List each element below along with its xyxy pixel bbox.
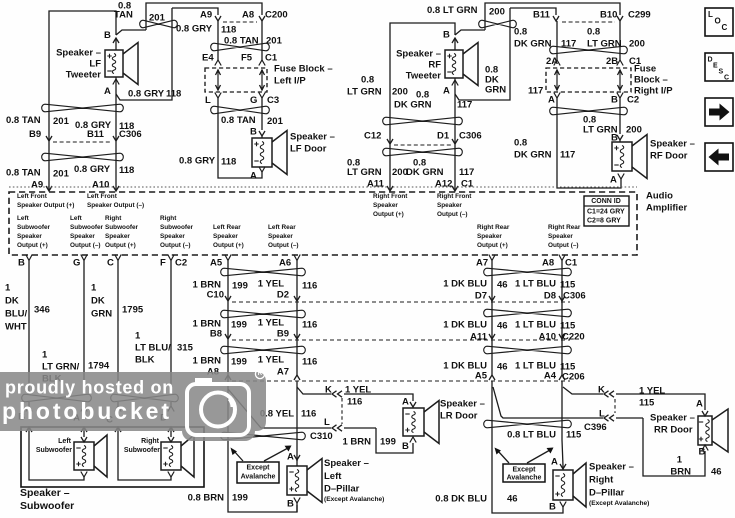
svg-text:0.8 GRY: 0.8 GRY (176, 23, 213, 34)
svg-text:C10: C10 (207, 289, 224, 300)
svg-text:117: 117 (561, 38, 576, 49)
svg-text:Speaker: Speaker (70, 233, 95, 240)
svg-text:Output (–): Output (–) (437, 211, 468, 218)
svg-text:Block –: Block – (634, 74, 668, 85)
svg-text:R: R (258, 371, 263, 377)
svg-text:C: C (724, 75, 729, 82)
svg-text:A: A (696, 398, 703, 409)
svg-text:B: B (104, 30, 111, 41)
svg-text:Speaker: Speaker (437, 202, 462, 209)
svg-text:BLU/: BLU/ (5, 308, 28, 319)
svg-text:0.8 LT GRN: 0.8 LT GRN (427, 5, 478, 16)
svg-text:C306: C306 (459, 130, 482, 141)
svg-text:Speaker: Speaker (373, 202, 398, 209)
svg-text:A: A (443, 85, 450, 96)
svg-text:117: 117 (528, 85, 543, 96)
svg-text:Right I/P: Right I/P (634, 85, 673, 96)
svg-text:Subwoofer: Subwoofer (124, 447, 160, 454)
svg-text:201: 201 (266, 35, 283, 46)
svg-text:B9: B9 (29, 129, 41, 140)
svg-text:B: B (287, 498, 294, 509)
svg-text:A: A (548, 94, 555, 105)
svg-text:LT GRN: LT GRN (347, 86, 382, 97)
svg-text:Speaker: Speaker (160, 233, 185, 240)
svg-text:A: A (610, 174, 617, 185)
svg-text:Avalanche: Avalanche (507, 475, 542, 482)
svg-text:LR Door: LR Door (440, 410, 478, 421)
svg-text:200: 200 (626, 124, 642, 135)
svg-text:A5: A5 (475, 370, 488, 381)
svg-text:115: 115 (639, 397, 655, 408)
svg-text:199: 199 (380, 436, 396, 447)
svg-text:B9: B9 (277, 328, 289, 339)
svg-text:B: B (250, 126, 257, 137)
svg-text:A: A (551, 456, 558, 467)
svg-text:Speaker: Speaker (268, 233, 293, 240)
svg-text:LT GRN: LT GRN (587, 38, 622, 49)
svg-text:Avalanche: Avalanche (241, 474, 276, 481)
svg-text:LT GRN/: LT GRN/ (42, 361, 80, 372)
svg-text:0.8 LT BLU: 0.8 LT BLU (507, 429, 556, 440)
svg-text:Right: Right (160, 215, 177, 222)
svg-text:A4: A4 (544, 370, 557, 381)
svg-text:201: 201 (267, 116, 284, 127)
svg-text:A10: A10 (539, 331, 556, 342)
svg-text:Speaker –: Speaker – (56, 47, 101, 58)
svg-text:Output (+): Output (+) (105, 242, 136, 249)
svg-text:A8: A8 (542, 257, 554, 268)
svg-text:0.8 GRY: 0.8 GRY (74, 164, 111, 175)
svg-text:1 DK BLU: 1 DK BLU (443, 319, 487, 330)
svg-text:C3: C3 (267, 95, 279, 106)
svg-text:117: 117 (459, 167, 474, 178)
svg-text:S: S (719, 69, 724, 76)
svg-text:201: 201 (53, 116, 70, 127)
svg-text:0.8 BRN: 0.8 BRN (188, 492, 225, 503)
svg-text:L: L (205, 95, 211, 106)
svg-text:Speaker Output (–): Speaker Output (–) (87, 202, 144, 209)
svg-text:Speaker –: Speaker – (290, 131, 335, 142)
svg-text:A12: A12 (435, 178, 452, 189)
svg-text:199: 199 (232, 280, 248, 291)
svg-text:Speaker: Speaker (213, 233, 238, 240)
svg-text:Fuse: Fuse (634, 63, 656, 74)
svg-text:Subwoofer: Subwoofer (70, 224, 104, 231)
svg-text:0.8 GRY: 0.8 GRY (128, 88, 165, 99)
svg-text:Right: Right (589, 474, 614, 485)
svg-text:E: E (713, 63, 718, 70)
svg-text:BRN: BRN (670, 466, 691, 477)
svg-text:199: 199 (231, 356, 247, 367)
svg-text:C2: C2 (627, 94, 639, 105)
svg-text:Right Front: Right Front (437, 193, 472, 200)
svg-text:B8: B8 (210, 328, 222, 339)
svg-text:C: C (722, 23, 728, 32)
svg-text:Right Rear: Right Rear (477, 224, 510, 231)
svg-text:1 YEL: 1 YEL (258, 354, 284, 365)
svg-text:Left Rear: Left Rear (268, 224, 296, 231)
svg-text:116: 116 (302, 356, 317, 367)
svg-text:Tweeter: Tweeter (406, 70, 442, 81)
svg-text:RF: RF (428, 59, 441, 70)
svg-text:Except: Except (513, 467, 537, 474)
svg-text:Output (+): Output (+) (373, 211, 404, 218)
svg-text:346: 346 (34, 304, 50, 315)
svg-text:2B: 2B (606, 56, 618, 67)
svg-text:D1: D1 (437, 130, 450, 141)
svg-text:Left: Left (17, 215, 30, 222)
svg-text:0.8 TAN: 0.8 TAN (224, 35, 259, 46)
svg-text:L: L (599, 408, 605, 419)
svg-text:1 YEL: 1 YEL (258, 278, 284, 289)
svg-text:photobucket: photobucket (2, 398, 172, 424)
svg-text:Right Front: Right Front (373, 193, 408, 200)
svg-text:CONN ID: CONN ID (591, 198, 621, 205)
svg-text:C1: C1 (461, 178, 474, 189)
svg-text:Output (–): Output (–) (548, 242, 579, 249)
svg-text:C206: C206 (562, 371, 585, 382)
svg-text:C: C (107, 257, 114, 268)
svg-text:117: 117 (457, 99, 472, 110)
svg-text:Output (–): Output (–) (70, 242, 101, 249)
svg-text:200: 200 (629, 38, 645, 49)
svg-text:C1=24 GRY: C1=24 GRY (587, 209, 625, 216)
svg-text:DK GRN: DK GRN (514, 149, 552, 160)
svg-text:C12: C12 (364, 130, 381, 141)
svg-text:D2: D2 (277, 289, 289, 300)
svg-text:C1: C1 (565, 257, 578, 268)
svg-text:C220: C220 (562, 331, 585, 342)
svg-text:1 YEL: 1 YEL (258, 317, 284, 328)
svg-text:A: A (287, 451, 294, 462)
svg-text:A: A (402, 396, 409, 407)
svg-text:Speaker –: Speaker – (650, 412, 695, 423)
svg-text:0.8: 0.8 (514, 137, 527, 148)
svg-text:B: B (443, 29, 450, 40)
svg-text:1: 1 (5, 282, 11, 293)
svg-text:1 YEL: 1 YEL (345, 384, 371, 395)
svg-text:TAN: TAN (114, 9, 133, 20)
svg-text:G: G (250, 95, 257, 106)
svg-text:A9: A9 (31, 179, 43, 190)
svg-text:1 LT BLU: 1 LT BLU (515, 278, 556, 289)
svg-text:201: 201 (149, 12, 166, 23)
svg-text:Output (+): Output (+) (213, 242, 244, 249)
svg-text:201: 201 (53, 168, 70, 179)
svg-text:0.8: 0.8 (587, 26, 600, 37)
svg-text:D–Pillar: D–Pillar (324, 483, 360, 494)
svg-text:WHT: WHT (5, 321, 27, 332)
svg-text:199: 199 (231, 319, 247, 330)
svg-text:Speaker –: Speaker – (20, 487, 70, 499)
svg-text:Left: Left (70, 215, 83, 222)
svg-text:Right: Right (105, 215, 122, 222)
svg-text:L: L (708, 10, 713, 19)
svg-text:Speaker –: Speaker – (440, 398, 485, 409)
svg-text:2A: 2A (546, 56, 558, 67)
svg-text:116: 116 (301, 408, 316, 419)
svg-text:B11: B11 (87, 129, 105, 140)
svg-text:46: 46 (497, 320, 508, 331)
svg-text:C1: C1 (265, 52, 278, 63)
svg-text:B: B (549, 501, 556, 512)
svg-text:DK GRN: DK GRN (394, 99, 432, 110)
svg-text:GRN: GRN (485, 84, 506, 95)
svg-text:A11: A11 (470, 331, 488, 342)
svg-text:K: K (598, 384, 605, 395)
svg-text:B11: B11 (533, 9, 551, 20)
svg-text:A: A (250, 170, 257, 181)
svg-text:A10: A10 (92, 179, 109, 190)
svg-text:1 BRN: 1 BRN (192, 355, 221, 366)
svg-text:E4: E4 (202, 52, 214, 63)
svg-text:Right Rear: Right Rear (548, 224, 581, 231)
svg-text:B: B (611, 132, 618, 143)
svg-text:1 LT BLU: 1 LT BLU (515, 319, 556, 330)
svg-text:DK GRN: DK GRN (514, 38, 552, 49)
svg-text:G: G (73, 257, 80, 268)
svg-text:1: 1 (677, 454, 683, 465)
svg-text:Left Rear: Left Rear (213, 224, 241, 231)
svg-text:Output (–): Output (–) (268, 242, 299, 249)
svg-text:0.8 GRY: 0.8 GRY (179, 155, 216, 166)
svg-text:D–Pillar: D–Pillar (589, 487, 625, 498)
svg-text:116: 116 (302, 319, 317, 330)
svg-text:315: 315 (177, 342, 194, 353)
svg-text:118: 118 (119, 165, 134, 176)
svg-text:0.8 TAN: 0.8 TAN (221, 115, 256, 126)
svg-text:1795: 1795 (122, 304, 144, 315)
svg-text:Subwoofer: Subwoofer (20, 500, 74, 512)
svg-text:1794: 1794 (88, 360, 110, 371)
svg-text:A11: A11 (367, 178, 385, 189)
svg-text:LT BLU/: LT BLU/ (135, 342, 171, 353)
svg-text:C306: C306 (119, 129, 142, 140)
svg-text:Speaker –: Speaker – (589, 461, 634, 472)
svg-text:(Except Avalanche): (Except Avalanche) (589, 500, 649, 507)
svg-text:Left Front: Left Front (17, 193, 48, 200)
svg-text:0.8: 0.8 (361, 74, 374, 85)
svg-text:A7: A7 (476, 257, 488, 268)
svg-text:GRN: GRN (91, 308, 112, 319)
svg-text:C310: C310 (310, 431, 333, 442)
svg-text:200: 200 (392, 86, 408, 97)
svg-text:46: 46 (507, 493, 518, 504)
svg-text:F: F (160, 257, 166, 268)
svg-text:Left Front: Left Front (87, 193, 118, 200)
svg-text:Output (+): Output (+) (477, 242, 508, 249)
svg-text:Subwoofer: Subwoofer (160, 224, 194, 231)
svg-text:DK: DK (91, 295, 105, 306)
svg-text:F5: F5 (241, 52, 253, 63)
svg-text:0.8 TAN: 0.8 TAN (6, 167, 41, 178)
svg-text:Subwoofer: Subwoofer (17, 224, 51, 231)
svg-text:Speaker: Speaker (548, 233, 573, 240)
svg-text:Right: Right (141, 438, 160, 445)
svg-text:B: B (402, 441, 409, 452)
svg-text:Tweeter: Tweeter (66, 69, 102, 80)
svg-text:46: 46 (497, 361, 508, 372)
svg-text:C396: C396 (584, 422, 607, 433)
svg-text:D7: D7 (475, 290, 487, 301)
svg-text:D: D (708, 57, 713, 64)
svg-text:118: 118 (166, 88, 181, 99)
svg-text:Speaker Output (+): Speaker Output (+) (17, 202, 74, 209)
svg-text:115: 115 (566, 429, 582, 440)
svg-text:Fuse Block –: Fuse Block – (274, 63, 333, 74)
svg-text:C306: C306 (563, 290, 586, 301)
svg-text:C200: C200 (265, 9, 288, 20)
svg-text:Audio: Audio (646, 190, 673, 201)
svg-text:Left: Left (324, 471, 342, 482)
svg-text:1 YEL: 1 YEL (639, 385, 665, 396)
svg-text:Left: Left (58, 438, 72, 445)
svg-text:117: 117 (560, 149, 575, 160)
svg-text:C299: C299 (628, 9, 651, 20)
svg-text:199: 199 (232, 492, 248, 503)
svg-text:Output (+): Output (+) (17, 242, 48, 249)
svg-text:Amplifier: Amplifier (646, 202, 687, 213)
svg-text:O: O (715, 17, 721, 26)
svg-text:Speaker –: Speaker – (324, 458, 369, 469)
svg-text:A6: A6 (279, 257, 291, 268)
svg-text:Speaker: Speaker (477, 233, 502, 240)
svg-text:115: 115 (560, 279, 576, 290)
svg-text:LF: LF (89, 58, 101, 69)
svg-text:0.8: 0.8 (514, 26, 527, 37)
svg-text:Speaker: Speaker (17, 233, 42, 240)
svg-text:Output (–): Output (–) (160, 242, 191, 249)
svg-text:A7: A7 (277, 366, 289, 377)
svg-text:K: K (325, 384, 332, 395)
svg-text:D8: D8 (544, 290, 556, 301)
svg-text:1: 1 (135, 330, 141, 341)
svg-text:46: 46 (497, 279, 508, 290)
svg-text:C2=8 GRY: C2=8 GRY (587, 218, 621, 225)
svg-text:B: B (611, 94, 618, 105)
svg-text:Speaker –: Speaker – (650, 138, 695, 149)
svg-text:115: 115 (560, 320, 576, 331)
svg-text:RR Door: RR Door (654, 424, 693, 435)
svg-text:1 BRN: 1 BRN (342, 436, 371, 447)
svg-text:A8: A8 (242, 9, 254, 20)
svg-text:A9: A9 (200, 9, 212, 20)
svg-text:A: A (104, 86, 111, 97)
svg-text:Left I/P: Left I/P (274, 75, 306, 86)
svg-text:LT GRN: LT GRN (347, 167, 382, 178)
svg-text:BLK: BLK (135, 354, 155, 365)
svg-text:0.8 TAN: 0.8 TAN (6, 115, 41, 126)
svg-text:DK GRN: DK GRN (406, 167, 444, 178)
svg-text:200: 200 (489, 6, 505, 17)
svg-text:LF Door: LF Door (290, 143, 327, 154)
svg-text:1: 1 (42, 349, 48, 360)
svg-text:116: 116 (347, 396, 362, 407)
svg-text:(Except Avalanche): (Except Avalanche) (324, 496, 384, 503)
svg-text:1: 1 (91, 282, 97, 293)
svg-text:Speaker –: Speaker – (396, 48, 441, 59)
svg-text:DK: DK (5, 295, 19, 306)
svg-text:Subwoofer: Subwoofer (105, 224, 139, 231)
svg-text:proudly hosted on: proudly hosted on (5, 378, 174, 398)
svg-text:Except: Except (247, 465, 271, 472)
svg-text:L: L (324, 417, 330, 428)
svg-text:0.8 DK BLU: 0.8 DK BLU (435, 493, 487, 504)
svg-text:B: B (18, 257, 25, 268)
svg-text:118: 118 (221, 156, 236, 167)
svg-text:Subwoofer: Subwoofer (36, 447, 72, 454)
svg-text:RF Door: RF Door (650, 150, 688, 161)
svg-text:B: B (699, 446, 706, 457)
svg-text:C2: C2 (175, 257, 187, 268)
svg-text:46: 46 (711, 466, 722, 477)
svg-text:1 DK BLU: 1 DK BLU (443, 278, 487, 289)
svg-text:116: 116 (302, 280, 317, 291)
svg-text:B10: B10 (600, 9, 617, 20)
svg-text:A5: A5 (210, 257, 223, 268)
svg-text:118: 118 (221, 24, 236, 35)
svg-text:Speaker: Speaker (105, 233, 130, 240)
